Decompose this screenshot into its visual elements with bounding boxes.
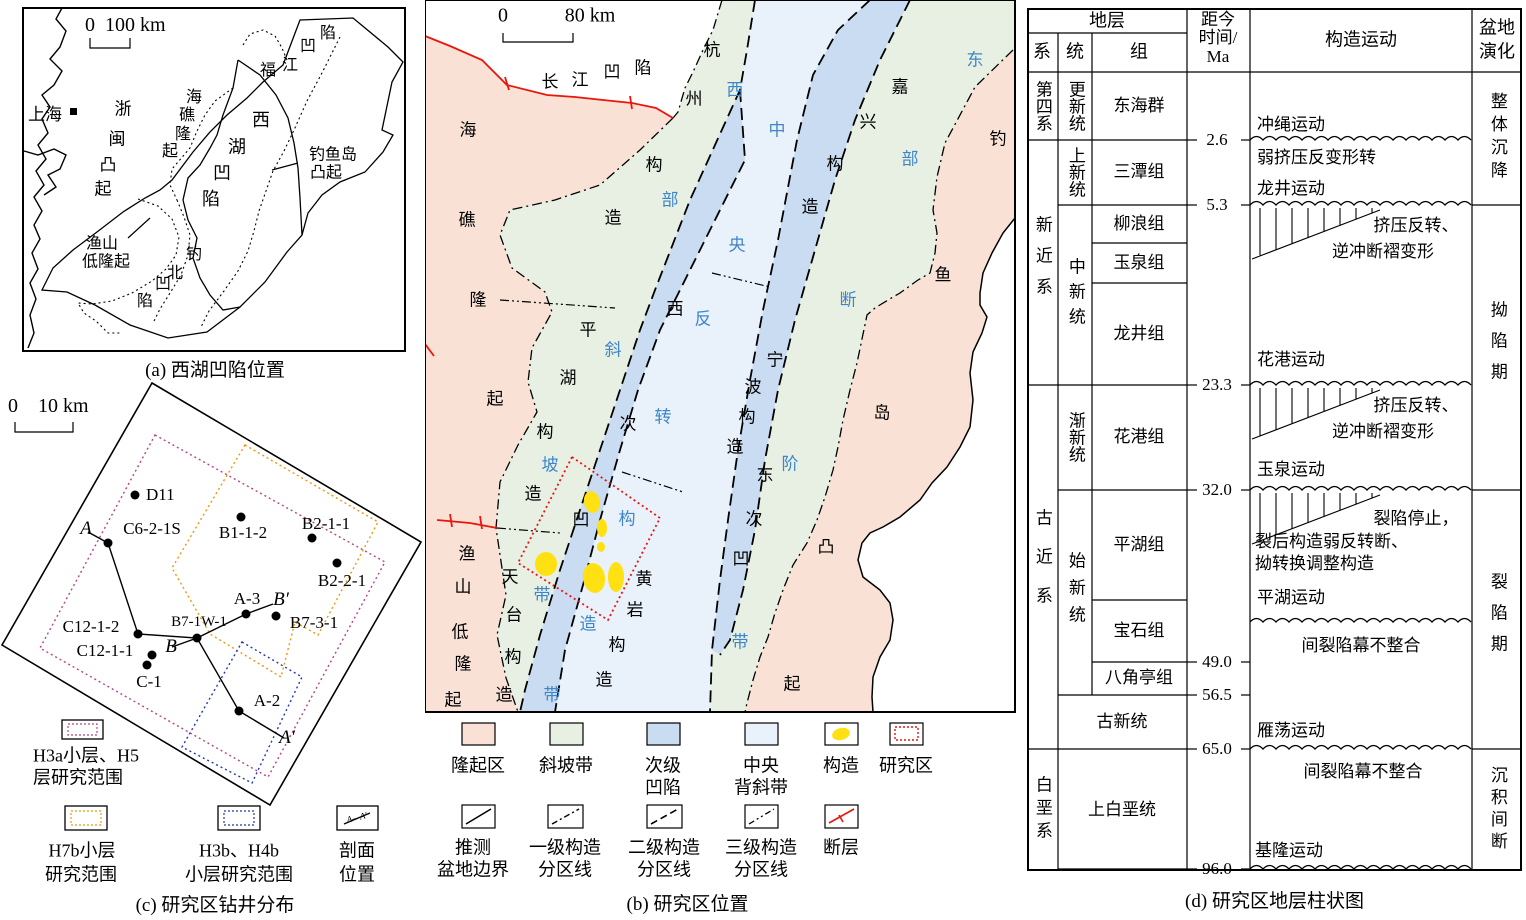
movement-okinawa: 冲绳运动 (1257, 116, 1325, 134)
movement-rift-adjust: 拗转换调整构造 (1255, 555, 1374, 573)
age-32-0: 32.0 (1202, 481, 1232, 499)
panel-b-caption: (b) 研究区位置 (425, 889, 950, 916)
fm-pinghu: 平湖组 (1114, 536, 1165, 554)
evolution-depression-stage: 拗陷期 (1488, 301, 1506, 394)
fm-liulang: 柳浪组 (1114, 215, 1165, 233)
panel-b-svg (425, 0, 1017, 920)
evolution-hiatus: 沉积间断 (1488, 766, 1506, 854)
panel-c-caption: (c) 研究区钻井分布 (30, 890, 400, 917)
fm-huagang: 花港组 (1114, 428, 1165, 446)
legend-third-order-label1: 三级构造 (725, 839, 797, 858)
figure-root: 0 100 km 上海 浙闽凸起 海礁隆起 福江凹陷 西湖凹陷 钓北凹陷 钓鱼岛… (0, 0, 1526, 920)
panel-a-svg (20, 3, 410, 378)
header-basin-evolution-line2: 演化 (1479, 43, 1515, 62)
well-label: B7-3-1 (290, 614, 338, 632)
age-49-0: 49.0 (1202, 653, 1232, 671)
series-eocene: 始新统 (1066, 552, 1084, 633)
unconformity-label-1: 间裂陷幕不整合 (1302, 637, 1421, 655)
movement-rift-stop: 裂陷停止， (1374, 510, 1459, 528)
age-2-6: 2.6 (1206, 131, 1227, 149)
panel-a-location-map: 0 100 km 上海 浙闽凸起 海礁隆起 福江凹陷 西湖凹陷 钓北凹陷 钓鱼岛… (20, 3, 410, 378)
legend-h3b-line1: H3b、H4b (199, 842, 279, 861)
label-yushan-line1: 渔山 (86, 237, 118, 254)
legend-first-order-label1: 一级构造 (529, 839, 601, 858)
movement-squeeze-2a: 挤压反转、 (1374, 397, 1459, 415)
panel-c-svg (0, 380, 432, 920)
legend-basin-edge-label2: 盆地边界 (437, 861, 509, 880)
panel-d-strat-column: 地层 系 统 组 距今 时间/ Ma 构造运动 盆地 演化 第四系 新近系 古近… (1027, 8, 1522, 871)
legend-section-line2: 位置 (339, 866, 375, 885)
legend-h7b-line1: H7b小层 (49, 842, 116, 861)
movement-longjing: 龙井运动 (1257, 180, 1325, 198)
fm-donghai: 东海群 (1114, 97, 1165, 115)
well-label: B2-1-1 (302, 515, 350, 533)
movement-squeeze-2b: 逆冲断褶变形 (1332, 423, 1434, 441)
legend-first-order-label2: 分区线 (538, 861, 592, 880)
header-age-line3: Ma (1207, 48, 1230, 66)
header-basin-evolution-line1: 盆地 (1479, 19, 1515, 38)
header-age-line2: 时间/ (1199, 29, 1238, 47)
section-label-a: A (80, 519, 92, 539)
movement-yuquan: 玉泉运动 (1257, 461, 1325, 479)
age-96-0: 96.0 (1202, 860, 1232, 878)
unconformity-label-2: 间裂陷幕不整合 (1304, 763, 1423, 781)
panel-c-scale-label: 0 10 km (8, 396, 89, 417)
well-label: A-3 (234, 590, 260, 608)
series-paleocene: 古新统 (1097, 713, 1148, 731)
age-56-5: 56.5 (1202, 686, 1232, 704)
panel-d-svg (1027, 8, 1522, 871)
legend-slope-label: 斜坡带 (539, 757, 593, 776)
panel-a-caption: (a) 西湖凹陷位置 (20, 355, 410, 382)
well-label: C12-1-1 (77, 642, 134, 660)
panel-b-scale-80km: 80 km (565, 6, 616, 27)
section-label-b: B (165, 637, 177, 657)
evolution-overall-subsidence: 整体沉降 (1488, 92, 1506, 184)
header-series: 统 (1066, 43, 1084, 62)
panel-c-scalebar (15, 422, 73, 432)
age-5-3: 5.3 (1206, 196, 1227, 214)
label-shanghai: 上海 (28, 106, 62, 124)
series-upper-cretaceous: 上白垩统 (1088, 801, 1156, 819)
header-formation: 组 (1130, 43, 1148, 62)
panel-d-caption: (d) 研究区地层柱状图 (1027, 886, 1522, 913)
well-label: A-2 (254, 692, 280, 710)
header-tectonic-movement: 构造运动 (1325, 31, 1397, 50)
fm-santan: 三潭组 (1114, 163, 1165, 181)
system-paleogene: 古近系 (1033, 509, 1051, 626)
series-pliocene: 上新统 (1066, 147, 1084, 198)
series-pleistocene: 更新统 (1066, 81, 1084, 132)
system-cretaceous: 白垩系 (1033, 776, 1051, 845)
shanghai-marker (70, 108, 77, 115)
movement-yandang: 雁荡运动 (1257, 722, 1325, 740)
panel-c-outer-boundary (2, 383, 421, 805)
well-label: B2-2-1 (318, 572, 366, 590)
panel-b-scale-zero: 0 (498, 6, 508, 27)
movement-squeeze-1b: 逆冲断褶变形 (1332, 243, 1434, 261)
system-quaternary: 第四系 (1033, 81, 1051, 132)
fm-longjing: 龙井组 (1114, 325, 1165, 343)
legend-h3b-line2: 小层研究范围 (185, 866, 293, 885)
system-neogene: 新近系 (1033, 216, 1051, 309)
section-label-a-prime: A′ (279, 728, 295, 748)
legend-anticline-label1: 中央 (743, 757, 779, 776)
well-label: C12-1-2 (63, 618, 120, 636)
legend-subsag-label1: 次级 (645, 757, 681, 776)
legend-h7b-line2: 研究范围 (45, 866, 117, 885)
header-age-line1: 距今 (1201, 11, 1235, 29)
fm-yuquan: 玉泉组 (1114, 254, 1165, 272)
section-label-b-prime: B′ (273, 590, 289, 610)
well-label: C-1 (136, 673, 162, 691)
well-label: B1-1-2 (219, 524, 267, 542)
panel-b-study-area-map: 0 80 km 长江凹陷 杭州构造 嘉兴构造 海礁隆起 平湖构造 西次凹 宁波构… (425, 0, 1017, 920)
legend-second-order-label2: 分区线 (637, 861, 691, 880)
well-label: D11 (146, 486, 175, 504)
movement-weak-compression: 弱挤压反变形转 (1257, 149, 1376, 167)
age-65-0: 65.0 (1202, 740, 1232, 758)
header-strata: 地层 (1089, 12, 1125, 31)
series-oligocene: 渐新统 (1066, 412, 1084, 463)
series-miocene: 中新统 (1066, 258, 1084, 333)
label-yushan-line2: 低隆起 (82, 255, 130, 272)
legend-h3a-line2: 层研究范围 (33, 769, 123, 788)
movement-pinghu: 平湖运动 (1257, 589, 1325, 607)
age-23-3: 23.3 (1202, 376, 1232, 394)
movement-huagang: 花港运动 (1257, 351, 1325, 369)
legend-anticline-label2: 背斜带 (734, 779, 788, 798)
legend-subsag-label2: 凹陷 (645, 779, 681, 798)
legend-structure-label: 构造 (823, 757, 859, 776)
well-label: B7-1W-1 (171, 615, 227, 631)
label-diaoyudao-uplift-line2: 凸起 (310, 166, 342, 183)
legend-study-area-label: 研究区 (879, 757, 933, 776)
legend-h3a-line1: H3a小层、H5 (33, 747, 139, 766)
label-diaoyudao-uplift-line1: 钓鱼岛 (309, 148, 357, 165)
evolution-rift-stage: 裂陷期 (1488, 573, 1506, 666)
legend-second-order-label1: 二级构造 (628, 839, 700, 858)
panel-c-well-map: 0 10 km D11 C6-2-1S B1-1-2 B2-1-1 B2-2-1… (0, 380, 432, 920)
movement-squeeze-1a: 挤压反转、 (1374, 217, 1459, 235)
fm-bajiaoting: 八角亭组 (1105, 669, 1173, 687)
header-system: 系 (1033, 43, 1051, 62)
legend-fault-label: 断层 (823, 839, 859, 858)
legend-uplift-label: 隆起区 (451, 757, 505, 776)
panel-a-scale-label: 0 100 km (85, 15, 166, 36)
well-label: C6-2-1S (123, 520, 181, 538)
movement-rift-post: 裂后构造弱反转断、 (1255, 533, 1408, 551)
movement-jilong: 基隆运动 (1255, 842, 1323, 860)
legend-third-order-label2: 分区线 (734, 861, 788, 880)
legend-section-line1: 剖面 (339, 842, 375, 861)
legend-basin-edge-label1: 推测 (455, 839, 491, 858)
fm-baoshi: 宝石组 (1114, 622, 1165, 640)
